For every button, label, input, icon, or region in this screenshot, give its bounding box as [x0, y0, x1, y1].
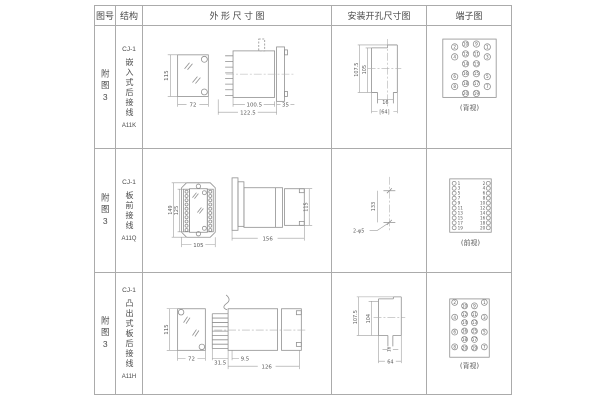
- dim-side-height: 115: [304, 202, 310, 211]
- terminal-number: 12: [463, 51, 469, 56]
- outline-cell-row2: 149 125 105 115 156: [143, 149, 332, 273]
- structure-cell-row2: CJ-1 板前接线 A11Q: [116, 149, 143, 273]
- terminal-numbers: 2 4 6 8 10 12 14 16 18 20 9 11 13 15 17 …: [453, 300, 486, 350]
- view-label: (前视): [461, 238, 481, 247]
- terminal-number: 12: [462, 312, 468, 317]
- terminal-number: 15: [474, 71, 480, 76]
- mounting-drawing-a11k: 107.5 105 16 [64]: [332, 26, 426, 148]
- header-mounting: 安装开孔尺寸图: [332, 6, 427, 26]
- terminal-number: 13: [472, 320, 478, 325]
- dim-outer-height: 107.5: [354, 63, 360, 77]
- terminal-number: 11: [472, 312, 478, 317]
- model-label: CJ-1: [122, 287, 136, 294]
- terminal-number: 6: [453, 74, 456, 79]
- terminal-number: 18: [463, 81, 469, 86]
- mounting-drawing-a11h: 107.5 104 16 64: [332, 273, 426, 394]
- figure-label: 附图3: [101, 193, 110, 229]
- terminal-diagram-a11q: 1 3 5 7 9 11 13 15 17 19 2 4 6 8 10 12 1: [427, 149, 511, 272]
- terminal-cell-row2: 1 3 5 7 9 11 13 15 17 19 2 4 6 8 10 12 1: [427, 149, 511, 273]
- terminal-number: 18: [462, 337, 468, 342]
- terminal-number: 10: [462, 303, 468, 308]
- dim-front-width: 105: [193, 243, 203, 249]
- dim-front-height: 115: [164, 324, 170, 334]
- figure-label: 附图3: [101, 316, 110, 352]
- terminal-number: 7: [486, 84, 489, 89]
- header-outline: 外 形 尺 寸 图: [143, 6, 332, 26]
- terminal-number: 9: [475, 42, 478, 47]
- terminal-number: 1: [483, 300, 486, 305]
- terminal-number: 20: [463, 91, 469, 96]
- terminal-number: 17: [472, 337, 478, 342]
- header-structure-label: 结构: [120, 9, 138, 22]
- terminal-number: 14: [462, 320, 468, 325]
- cutout-outline: [379, 297, 402, 346]
- side-view: [225, 39, 287, 101]
- outline-cell-row1: 115 72 100.5 122.5 35: [143, 26, 332, 149]
- figure-cell-row3: 附图3: [95, 273, 116, 394]
- terminal-cell-row3: 2 4 6 8 10 12 14 16 18 20 9 11 13 15 17 …: [427, 273, 511, 394]
- terminal-number: 1: [486, 45, 489, 50]
- mounting-cell-row3: 107.5 104 16 64: [332, 273, 427, 394]
- terminal-number: 13: [474, 61, 480, 66]
- terminal-number: 9: [473, 303, 476, 308]
- dim-front-height: 115: [164, 70, 170, 80]
- header-figure: 图号: [95, 6, 116, 26]
- dim-inner-height: 125: [174, 206, 180, 215]
- dim-outer-height: 107.5: [353, 310, 359, 324]
- header-terminal: 端子图: [427, 6, 511, 26]
- dim-body-length: 100.5: [247, 103, 263, 109]
- terminal-number: 3: [486, 54, 489, 59]
- outline-drawing-a11q: 149 125 105 115 156: [143, 149, 331, 272]
- dim-inner-height: 105: [362, 65, 368, 74]
- dimension-lines: [357, 297, 402, 363]
- terminal-number: 8: [453, 344, 456, 349]
- dim-offset: 9.5: [241, 357, 250, 363]
- figure-cell-row1: 附图3: [95, 26, 116, 149]
- view-label: (背视): [460, 361, 480, 370]
- outline-drawing-a11k: 115 72 100.5 122.5 35: [143, 26, 331, 148]
- terminal-number: 20: [462, 345, 468, 350]
- terminal-number: 20: [480, 225, 486, 230]
- structure-cell-row1: CJ-1 嵌入式后接线 A11K: [116, 26, 143, 149]
- dim-body-length: 126: [261, 364, 272, 370]
- dim-overall-width: [64]: [379, 110, 389, 116]
- dim-front-width: 72: [190, 103, 197, 109]
- dim-side-length: 156: [262, 236, 273, 242]
- dim-slot-width: 16: [386, 346, 391, 352]
- code-label: A11H: [122, 374, 137, 380]
- terminal-number: 17: [474, 81, 480, 86]
- figure-cell-row2: 附图3: [95, 149, 116, 273]
- terminal-number: 6: [453, 330, 456, 335]
- dim-front-width: 72: [188, 357, 195, 363]
- terminal-diagram-a11h: 2 4 6 8 10 12 14 16 18 20 9 11 13 15 17 …: [427, 273, 511, 394]
- structure-label: 板前接线: [125, 191, 133, 231]
- terminal-number: 8: [453, 84, 456, 89]
- terminal-number: 3: [483, 315, 486, 320]
- mounting-cell-row2: 133 2-φ5: [332, 149, 427, 273]
- terminal-diagram-a11k: 2 4 6 8 10 12 14 16 18 20 9 11 13 15 17 …: [427, 26, 511, 148]
- terminal-number: 19: [458, 225, 464, 230]
- side-view: [212, 295, 301, 350]
- header-figure-label: 图号: [96, 9, 114, 22]
- header-terminal-label: 端子图: [455, 9, 482, 22]
- terminal-number: 7: [483, 344, 486, 349]
- dim-slot-width: 16: [382, 100, 388, 106]
- view-label: (背视): [460, 103, 480, 112]
- model-label: CJ-1: [122, 179, 136, 186]
- dim-flange-depth: 35: [282, 103, 289, 109]
- terminal-number: 10: [463, 42, 469, 47]
- figure-label: 附图3: [101, 69, 110, 105]
- mounting-drawing-a11q: 133 2-φ5: [332, 149, 426, 272]
- code-label: A11Q: [122, 236, 137, 242]
- header-mounting-label: 安装开孔尺寸图: [347, 9, 410, 22]
- header-outline-label: 外 形 尺 寸 图: [209, 9, 264, 22]
- dim-overall-length: 122.5: [240, 111, 256, 117]
- datasheet-page: 图号 结构 外 形 尺 寸 图 安装开孔尺寸图 端子图 附图3 CJ-1 嵌入式…: [0, 0, 600, 400]
- terminal-number: 5: [483, 330, 486, 335]
- structure-label: 嵌入式后接线: [125, 58, 133, 118]
- side-view: [232, 178, 304, 230]
- terminal-numbers: 2 4 6 8 10 12 14 16 18 20 9 11 13 15 17 …: [453, 42, 489, 96]
- dim-hole-note: 2-φ5: [353, 228, 364, 234]
- dimension-table: 图号 结构 外 形 尺 寸 图 安装开孔尺寸图 端子图 附图3 CJ-1 嵌入式…: [94, 5, 512, 395]
- structure-label: 凸出式板后接线: [125, 299, 133, 369]
- terminal-number: 19: [472, 345, 478, 350]
- terminal-number: 2: [453, 300, 456, 305]
- terminal-number: 15: [472, 329, 478, 334]
- model-label: CJ-1: [122, 46, 136, 53]
- front-view: [178, 309, 206, 351]
- outline-cell-row3: 115 72 31.5 9.5 126: [143, 273, 332, 394]
- front-view: [178, 55, 209, 97]
- terminal-number: 2: [453, 45, 456, 50]
- code-label: A11K: [122, 123, 136, 129]
- terminal-cell-row1: 2 4 6 8 10 12 14 16 18 20 9 11 13 15 17 …: [427, 26, 511, 149]
- front-view: [182, 183, 216, 237]
- cutout-outline: [372, 45, 398, 103]
- structure-cell-row3: CJ-1 凸出式板后接线 A11H: [116, 273, 143, 394]
- mounting-cell-row1: 107.5 105 16 [64]: [332, 26, 427, 149]
- terminal-number: 11: [474, 51, 480, 56]
- terminal-number: 19: [474, 91, 480, 96]
- terminal-number: 14: [463, 61, 469, 66]
- terminal-number: 4: [453, 54, 456, 59]
- dim-comb-depth: 31.5: [214, 361, 226, 367]
- terminal-number: 4: [453, 315, 456, 320]
- dim-inner-height: 104: [366, 314, 372, 323]
- dim-overall-width: 64: [387, 359, 393, 365]
- outline-drawing-a11h: 115 72 31.5 9.5 126: [143, 273, 331, 394]
- terminal-number: 16: [462, 329, 468, 334]
- terminal-number: 16: [463, 71, 469, 76]
- terminal-numbers: 1 3 5 7 9 11 13 15 17 19 2 4 6 8 10 12 1: [458, 181, 486, 230]
- terminal-number: 5: [486, 74, 489, 79]
- header-structure: 结构: [116, 6, 143, 26]
- dimension-lines: [168, 55, 295, 115]
- dim-hole-spacing: 133: [371, 202, 377, 211]
